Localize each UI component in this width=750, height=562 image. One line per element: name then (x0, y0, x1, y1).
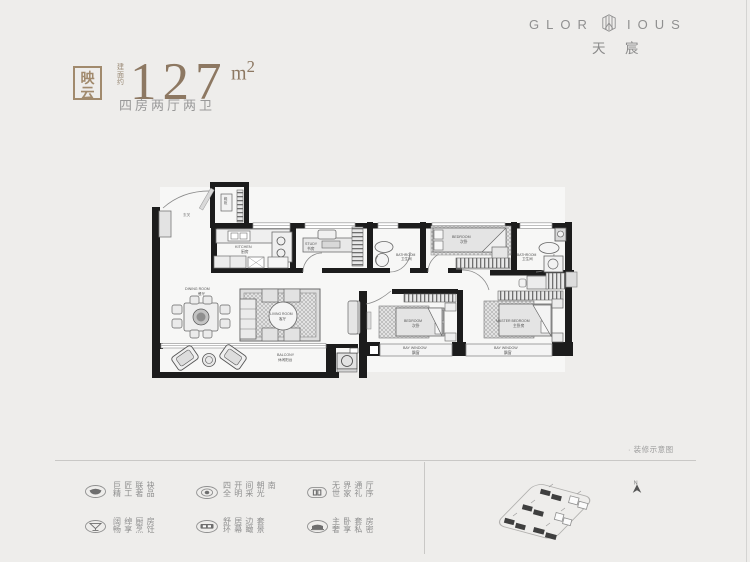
svg-text:卫生间: 卫生间 (401, 256, 412, 261)
svg-text:BAY WINDOW: BAY WINDOW (494, 346, 518, 350)
svg-text:次卧: 次卧 (412, 323, 420, 328)
svg-text:餐厅: 餐厅 (198, 291, 206, 296)
svg-text:KITCHEN: KITCHEN (235, 245, 252, 249)
svg-text:书房: 书房 (307, 246, 315, 251)
svg-text:卫生间: 卫生间 (522, 256, 533, 261)
svg-text:BEDROOM: BEDROOM (404, 319, 422, 323)
svg-text:BAY WINDOW: BAY WINDOW (403, 346, 427, 350)
svg-text:厨房: 厨房 (241, 249, 249, 254)
svg-text:飘窗: 飘窗 (412, 350, 420, 355)
svg-text:MASTER BEDROOM: MASTER BEDROOM (496, 319, 530, 323)
svg-text:次卧: 次卧 (460, 239, 468, 244)
svg-text:BALCONY: BALCONY (277, 353, 295, 357)
svg-text:休闲阳台: 休闲阳台 (278, 357, 293, 362)
svg-text:DINING ROOM: DINING ROOM (185, 287, 210, 291)
svg-text:STUDY: STUDY (305, 242, 318, 246)
svg-text:BEDROOM: BEDROOM (452, 235, 471, 239)
svg-text:客厅: 客厅 (279, 316, 287, 321)
svg-text:LIVING ROOM: LIVING ROOM (270, 312, 293, 316)
svg-text:飘窗: 飘窗 (504, 350, 512, 355)
svg-text:主卧房: 主卧房 (513, 323, 525, 328)
svg-text:玄关: 玄关 (183, 212, 191, 217)
